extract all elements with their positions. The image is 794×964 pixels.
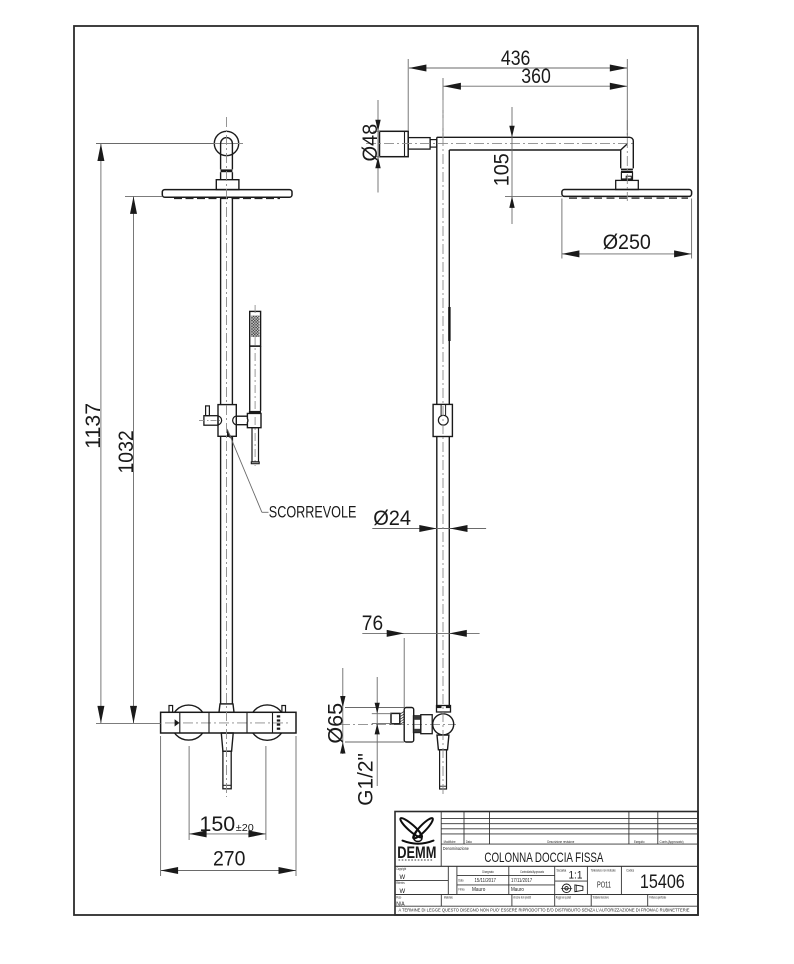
svg-text:Modifiche: Modifiche [444, 840, 456, 844]
svg-text:Materiale: Materiale [444, 895, 453, 899]
svg-text:Firma: Firma [458, 888, 465, 892]
svg-text:SCORREVOLE: SCORREVOLE [269, 504, 357, 522]
svg-text:Finitura superficiale: Finitura superficiale [649, 895, 666, 899]
svg-text:105: 105 [491, 153, 514, 186]
svg-text:W: W [400, 889, 406, 895]
svg-text:Raggi non quotati: Raggi non quotati [556, 895, 571, 899]
svg-text:COLONNA DOCCIA FISSA: COLONNA DOCCIA FISSA [484, 850, 604, 865]
svg-text:Controllato/Approvato: Controllato/Approvato [520, 869, 544, 874]
svg-text:Disegnato: Disegnato [482, 869, 494, 874]
svg-text:17/11/2017: 17/11/2017 [511, 878, 532, 884]
svg-text:360: 360 [521, 65, 551, 88]
svg-text:1137: 1137 [82, 403, 105, 449]
svg-text:A TERMINE DI LEGGE QUESTO DISE: A TERMINE DI LEGGE QUESTO DISEGNO NON PU… [399, 908, 690, 914]
svg-text:N/A: N/A [396, 901, 405, 907]
svg-text:Contr.(Approvato): Contr.(Approvato) [660, 840, 685, 844]
svg-text:15406: 15406 [640, 871, 685, 893]
svg-text:Eseguito: Eseguito [634, 840, 645, 844]
svg-text:76: 76 [362, 612, 383, 635]
svg-text:Mauro: Mauro [511, 887, 524, 893]
svg-text:Mauro: Mauro [472, 887, 485, 893]
svg-text:Codice: Codice [626, 868, 634, 873]
svg-text:1:1: 1:1 [569, 870, 583, 882]
svg-text:Ø65: Ø65 [325, 703, 348, 744]
svg-text:Scala: Scala [556, 868, 567, 873]
svg-text:G1/2": G1/2" [355, 753, 378, 806]
svg-text:15/11/2017: 15/11/2017 [475, 878, 496, 884]
svg-text:Tolleranze non indicate: Tolleranze non indicate [591, 868, 616, 873]
svg-text:PO11: PO11 [597, 881, 611, 890]
svg-text:Descrizione revisione: Descrizione revisione [547, 840, 574, 844]
svg-text:±20: ±20 [236, 822, 254, 834]
svg-text:DEMM: DEMM [397, 844, 436, 862]
svg-text:Trattamento/colore: Trattamento/colore [593, 895, 609, 899]
svg-text:Ø250: Ø250 [603, 231, 651, 254]
svg-text:Data: Data [458, 878, 464, 882]
svg-text:Riferim.: Riferim. [396, 881, 405, 885]
svg-text:Copyright: Copyright [396, 867, 406, 871]
svg-text:270: 270 [213, 847, 245, 870]
svg-text:Data: Data [466, 840, 473, 844]
svg-text:Peso: Peso [396, 895, 401, 899]
svg-text:Denominazione: Denominazione [443, 846, 470, 851]
svg-text:1032: 1032 [115, 430, 138, 473]
svg-text:Ø48: Ø48 [359, 124, 382, 162]
svg-text:150: 150 [199, 813, 235, 836]
svg-text:Ø24: Ø24 [373, 507, 411, 530]
svg-text:Versione item prodotti: Versione item prodotti [513, 895, 531, 899]
